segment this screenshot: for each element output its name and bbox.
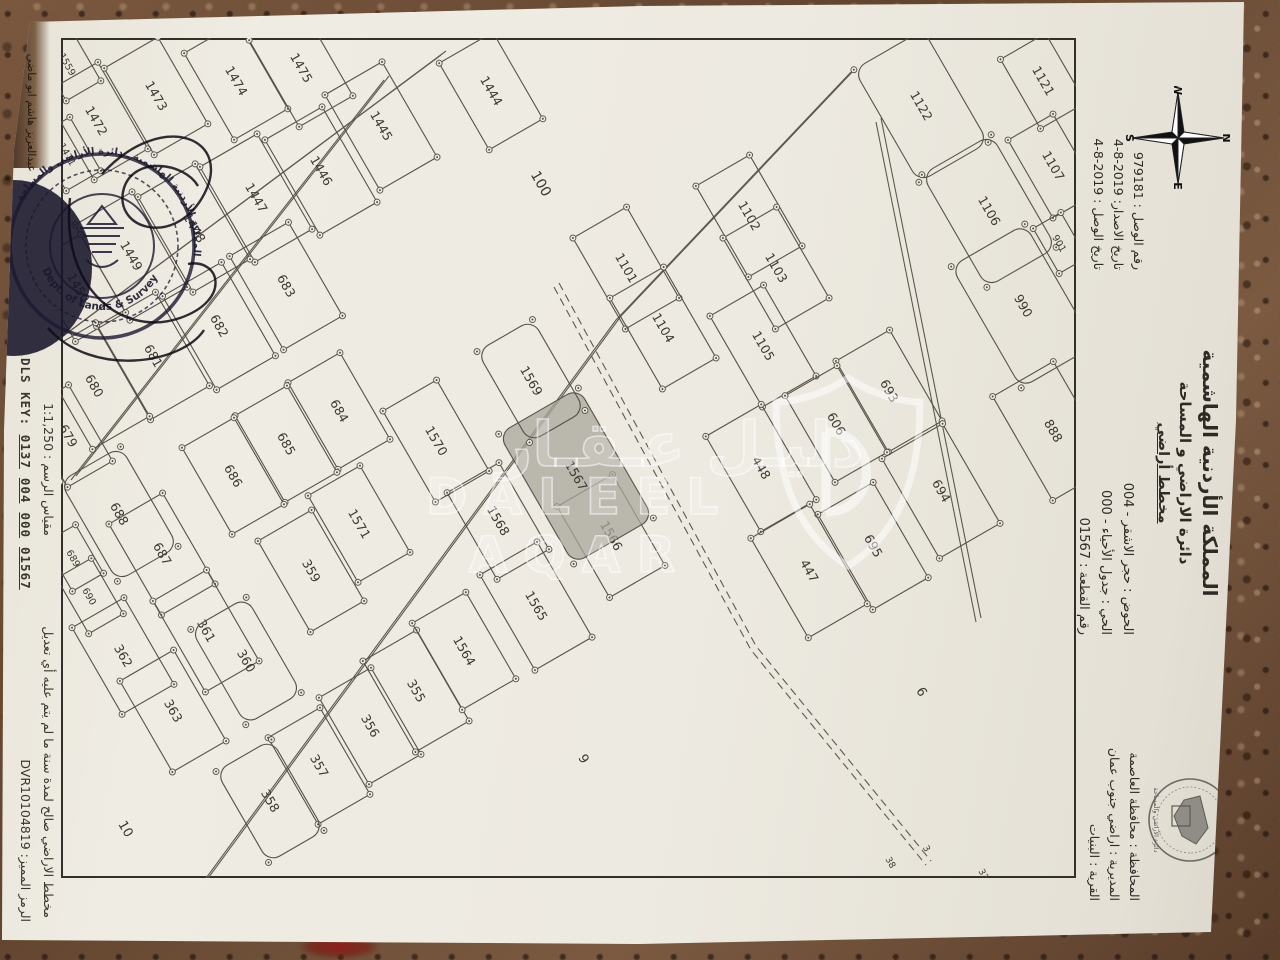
- parcel-1122: 1122: [850, 38, 992, 186]
- parcel-1444: 1444: [435, 38, 547, 154]
- dls-key-parts: 013700400001567: [18, 435, 33, 599]
- parcel-label-356: 356: [358, 712, 383, 740]
- parcel-label-1444: 1444: [477, 73, 506, 108]
- receipt-info-block: رقم الوصل : 979181 تاريخ الاصدار: 2019-8…: [1088, 50, 1148, 270]
- document-header: المملكة الأردنية الهاشمية دائرة الاراضي …: [1155, 248, 1222, 698]
- parcel-label-357: 357: [307, 752, 332, 780]
- directorate-field: المديرية : اراضي جنوب عمان: [1104, 696, 1124, 901]
- parcel-1102: 1102: [692, 151, 806, 281]
- parcel-label-1568: 1568: [484, 503, 513, 538]
- compass-west-label: W: [1171, 86, 1184, 95]
- issue-date: تاريخ الاصدار: 2019-8-4: [1108, 50, 1128, 270]
- parcel-label-690: 690: [79, 586, 98, 607]
- parcel-label-1122: 1122: [907, 88, 936, 123]
- dls-key-part: 0137: [18, 435, 33, 469]
- parcel-label-901: 901: [1049, 233, 1068, 254]
- parcel-357: 357: [264, 704, 374, 829]
- parcel-label-363: 363: [161, 697, 186, 725]
- logo-caption: دائرة الأراضي والمساحة: [1152, 788, 1161, 853]
- kingdom-title: المملكة الأردنية الهاشمية: [1198, 248, 1222, 698]
- parcel-679: 679: [61, 381, 117, 491]
- parcel-label-1570: 1570: [422, 423, 451, 458]
- boundary-line: [559, 283, 931, 861]
- receipt-date: تاريخ الوصل : 2019-8-4: [1088, 50, 1108, 270]
- parcel-label-360: 360: [234, 647, 259, 675]
- area-label-100: 100: [527, 168, 554, 199]
- parcel-1567: 1567: [495, 384, 658, 568]
- basin-field: الحوض : حجر الاشقر - 004: [1116, 315, 1138, 635]
- parcel-label-685: 685: [274, 430, 299, 458]
- parcel-label-1121: 1121: [1029, 63, 1058, 98]
- parcel-label-1571: 1571: [345, 506, 374, 541]
- compass-north-label: N: [1220, 133, 1230, 142]
- parcel-label-1104: 1104: [649, 310, 678, 345]
- parcel-689: 689: [61, 521, 108, 596]
- parcel-label-362: 362: [111, 642, 136, 670]
- dls-key-part: 000: [18, 512, 33, 538]
- parcel-label-1445: 1445: [367, 108, 396, 143]
- parcel-1445: 1445: [321, 58, 441, 194]
- compass-east-label: E: [1171, 182, 1184, 190]
- validity-note: مخطط الاراضي صالح لمدة سنة ما لم يتم علي…: [41, 558, 56, 918]
- parcel-label-689: 689: [63, 548, 82, 569]
- parcel-label-687: 687: [150, 540, 175, 568]
- distinct-code-field: الرمز المميز: DVR10104819: [18, 722, 33, 922]
- parcel-361: 361: [149, 566, 263, 696]
- dls-key-part: 004: [18, 478, 33, 504]
- parcel-label-684: 684: [327, 397, 352, 425]
- official-stamp: المملكة الأردنية الهاشمية ـ دائرة الأراض…: [0, 78, 312, 378]
- area-label-9: 9: [574, 752, 591, 767]
- department-title: دائرة الاراضي و المساحة: [1176, 248, 1194, 698]
- area-label-38: 38: [883, 856, 898, 871]
- scanned-paper-sheet: N S W E رقم الوصل : 979181 تاريخ الاصدار…: [0, 0, 1280, 960]
- plan-type-title: مخطط أراضي: [1155, 248, 1171, 698]
- parcel-label-1559: 1559: [61, 52, 78, 78]
- lands-department-logo-icon: دائرة الأراضي والمساحة: [1146, 776, 1234, 864]
- parcel-685: 685: [231, 382, 341, 507]
- parcel-label-1565: 1565: [522, 588, 551, 623]
- parcel-1571: 1571: [304, 462, 414, 587]
- governorate-field: المحافظة : محافظة العاصمة: [1124, 696, 1144, 901]
- parcel-label-355: 355: [404, 677, 429, 705]
- signature: [48, 137, 216, 361]
- photo-of-cadastral-plan: { "header": { "kingdom": "المملكة الأردن…: [0, 0, 1280, 960]
- parcel-label-358: 358: [258, 787, 283, 815]
- parcel-363: 363: [116, 646, 230, 776]
- area-label-6: 6: [912, 685, 929, 700]
- receipt-number: رقم الوصل : 979181: [1128, 50, 1148, 270]
- dls-key-part: 01567: [18, 547, 33, 590]
- parcel-label-1107: 1107: [1039, 148, 1068, 183]
- parcel-686: 686: [178, 414, 288, 539]
- parcel-label-694: 694: [929, 477, 954, 505]
- parcel-label-1101: 1101: [612, 250, 641, 285]
- parcel-888: 888: [989, 357, 1076, 504]
- village-field: القرية : البنيات: [1084, 696, 1104, 901]
- parcel-1570: 1570: [379, 376, 493, 506]
- jurisdiction-block: المحافظة : محافظة العاصمة المديرية : ارا…: [1084, 696, 1144, 901]
- parcel-fields-block: الحوض : حجر الاشقر - 004 الحي : جدول الأ…: [1072, 315, 1138, 635]
- parcel-360: 360: [187, 593, 306, 728]
- watermark-shield-icon: [768, 372, 928, 572]
- parcel-label-1564: 1564: [450, 633, 479, 668]
- parcel-1103: 1103: [719, 203, 833, 333]
- district-field: الحي : جدول الأحياء - 000: [1094, 315, 1116, 635]
- parcel-label-359: 359: [299, 557, 324, 585]
- parcel-label-1106: 1106: [975, 193, 1004, 228]
- parcel-1121: 1121: [996, 38, 1076, 133]
- parcel-label-888: 888: [1041, 417, 1066, 445]
- parcel-label-1569: 1569: [517, 363, 546, 398]
- dls-key-field: DLS KEY: 013700400001567: [18, 358, 33, 698]
- parcel-label-990: 990: [1011, 292, 1036, 320]
- area-label-10: 10: [114, 818, 135, 840]
- area-label-3: 3: [920, 844, 932, 854]
- parcel-label-1105: 1105: [749, 328, 778, 363]
- parcel-label-679: 679: [61, 422, 81, 450]
- parcel-label-686: 686: [221, 462, 246, 490]
